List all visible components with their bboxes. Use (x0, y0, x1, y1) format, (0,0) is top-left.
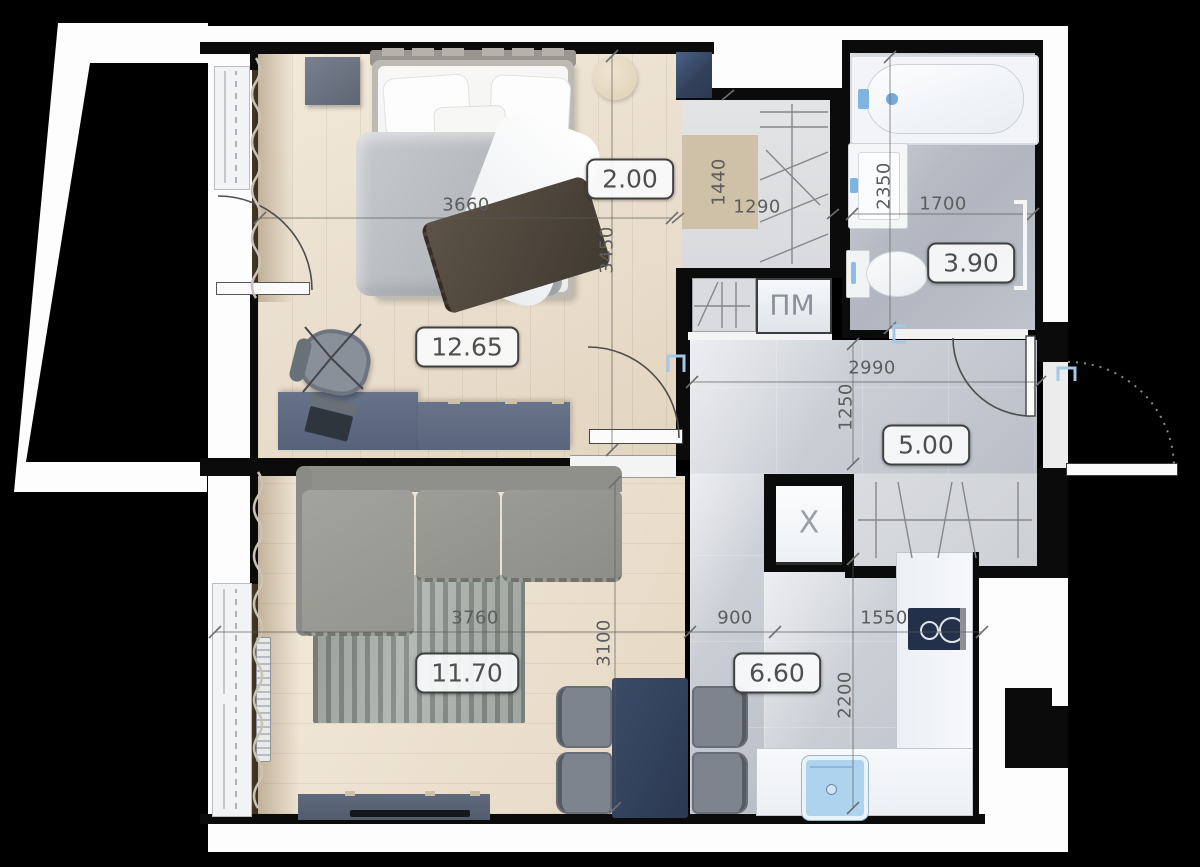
sofa-chaise (302, 490, 414, 636)
dim-living-width: 3760 (451, 608, 498, 629)
bedroom-window (214, 66, 250, 190)
area-label-living: 11.70 (415, 653, 519, 694)
bottom-exterior-wall (208, 822, 1068, 852)
entry-opening (1043, 362, 1068, 468)
wall-left-a (250, 54, 258, 70)
dim-bath-width: 1700 (919, 194, 966, 215)
area-label-nook: 2.00 (586, 159, 674, 200)
dim-bedroom-height: 3450 (597, 226, 618, 273)
window-frame-line (224, 71, 226, 183)
wall-left-c (250, 476, 258, 584)
toilet-flush-icon (851, 262, 856, 284)
headboard-tuft (542, 48, 564, 56)
entry-door-leaf (1066, 463, 1178, 476)
window-frame-line (223, 589, 225, 694)
bathtub (850, 55, 1039, 145)
headboard-tuft (412, 48, 434, 56)
entry-jamb-lower (1037, 468, 1068, 576)
dining-chair (692, 752, 748, 814)
hall-shelf-unit (692, 278, 756, 332)
tall-cabinet (676, 52, 712, 98)
dresser-handle (505, 399, 517, 404)
dim-hall-height: 1250 (836, 383, 857, 430)
sofa-back (296, 466, 622, 492)
tv-stand-handle (425, 791, 435, 796)
tv-stand-handle (470, 791, 480, 796)
living-window (212, 583, 252, 817)
dresser (418, 402, 570, 450)
dim-kitchen-a: 900 (717, 608, 753, 629)
exterior-notch-b (1005, 706, 1068, 768)
window-frame-dash (235, 589, 237, 809)
toilet-bowl (866, 251, 928, 297)
exterior-notch-a (1005, 688, 1052, 706)
tv-stand-handle (345, 791, 355, 796)
dim-living-height: 3100 (594, 619, 615, 666)
nightstand (305, 57, 360, 105)
kitchen-counter-right (896, 552, 973, 754)
left-structure-band (14, 23, 208, 492)
wall-bath-top (842, 40, 1043, 53)
floor-plan: ПМ X (0, 0, 1200, 867)
headboard-tuft (442, 48, 464, 56)
balcony-door-leaf (216, 282, 310, 295)
entry-jamb-upper (1037, 322, 1068, 362)
cooktop-burner (920, 621, 939, 640)
dining-table (612, 678, 688, 818)
sink-drain (826, 784, 837, 795)
bedroom-door-leaf (589, 429, 683, 444)
headboard-tuft (512, 48, 534, 56)
tv (350, 810, 470, 817)
cooktop (908, 608, 966, 650)
dresser-handle (448, 399, 460, 404)
washing-machine-label: ПМ (769, 289, 814, 322)
cooktop-side (960, 608, 966, 650)
bathroom-doorway (889, 329, 1028, 339)
kitchen-sink (802, 756, 868, 820)
headboard-tuft (482, 48, 504, 56)
bedroom-curtain-shadow (252, 54, 294, 302)
sofa-cushion (502, 490, 622, 582)
dining-chair (556, 752, 612, 814)
area-label-bedroom: 12.65 (415, 327, 519, 368)
dresser-handle (552, 399, 564, 404)
wall-left-b (250, 290, 258, 458)
headboard-tuft (382, 48, 404, 56)
right-exterior-wall-lower (979, 552, 1068, 822)
dim-nook-width: 1290 (733, 197, 780, 218)
wall-bath-bottom (842, 330, 889, 338)
sink-edge (810, 766, 852, 768)
dim-hall-width: 2990 (848, 358, 895, 379)
bathtub-faucet-icon (858, 89, 869, 109)
area-label-bathroom: 3.90 (927, 243, 1015, 284)
utility-label: X (799, 506, 820, 541)
window-frame-dash (235, 71, 237, 183)
entry-door-arc (1068, 362, 1174, 468)
dining-chair (692, 686, 748, 748)
dining-chair (556, 686, 612, 748)
bath-sink-faucet-icon (850, 178, 858, 193)
dim-bedroom-width: 3660 (442, 195, 489, 216)
dim-kitchen-b: 1550 (860, 608, 907, 629)
right-exterior-wall-upper (1043, 42, 1068, 322)
top-shaft-wall (712, 42, 842, 90)
area-label-kitchen: 6.60 (733, 653, 821, 694)
wall-closet-bottom (676, 268, 842, 278)
wall-washer-left (676, 268, 690, 340)
area-label-hallway: 5.00 (882, 425, 970, 466)
dim-bath-height: 2350 (874, 162, 895, 209)
pouf (593, 56, 637, 100)
wall-closet-right (830, 88, 842, 276)
sofa-cushion (416, 490, 500, 582)
window-frame-line (223, 704, 225, 809)
dim-kitchen-height: 2200 (835, 671, 856, 718)
radiator (256, 637, 271, 762)
dim-nook-height: 1440 (709, 158, 730, 205)
bathtub-drain-icon (886, 93, 898, 105)
